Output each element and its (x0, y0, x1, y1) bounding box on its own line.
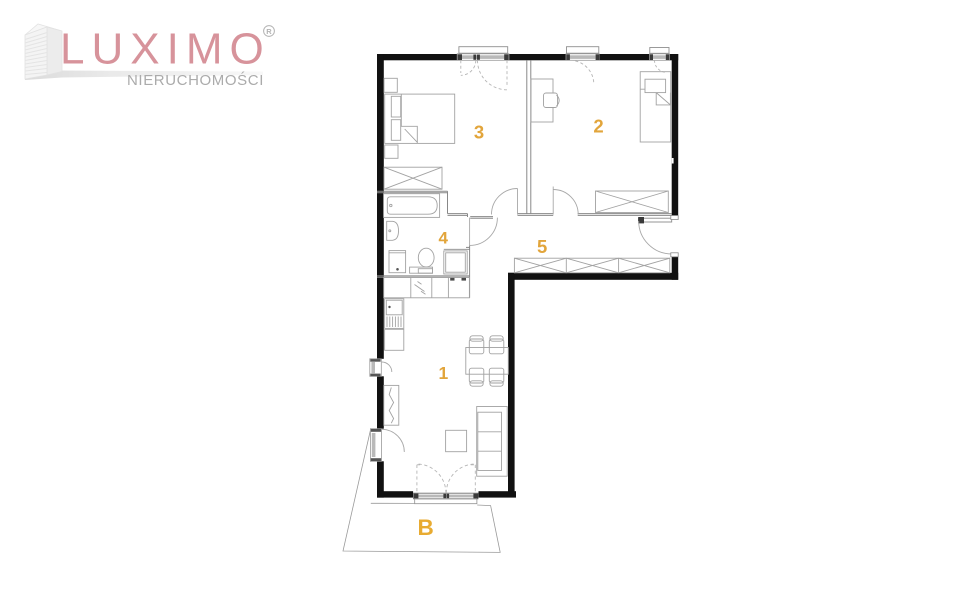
svg-text:NIERUCHOMOŚCI: NIERUCHOMOŚCI (127, 71, 264, 89)
svg-text:1: 1 (439, 363, 449, 383)
svg-text:3: 3 (474, 121, 484, 142)
svg-text:4: 4 (438, 228, 448, 247)
svg-text:R: R (266, 27, 272, 36)
svg-text:5: 5 (537, 236, 547, 257)
svg-text:2: 2 (593, 115, 603, 136)
svg-text:B: B (417, 515, 433, 540)
svg-text:LUXIMO: LUXIMO (60, 25, 271, 74)
